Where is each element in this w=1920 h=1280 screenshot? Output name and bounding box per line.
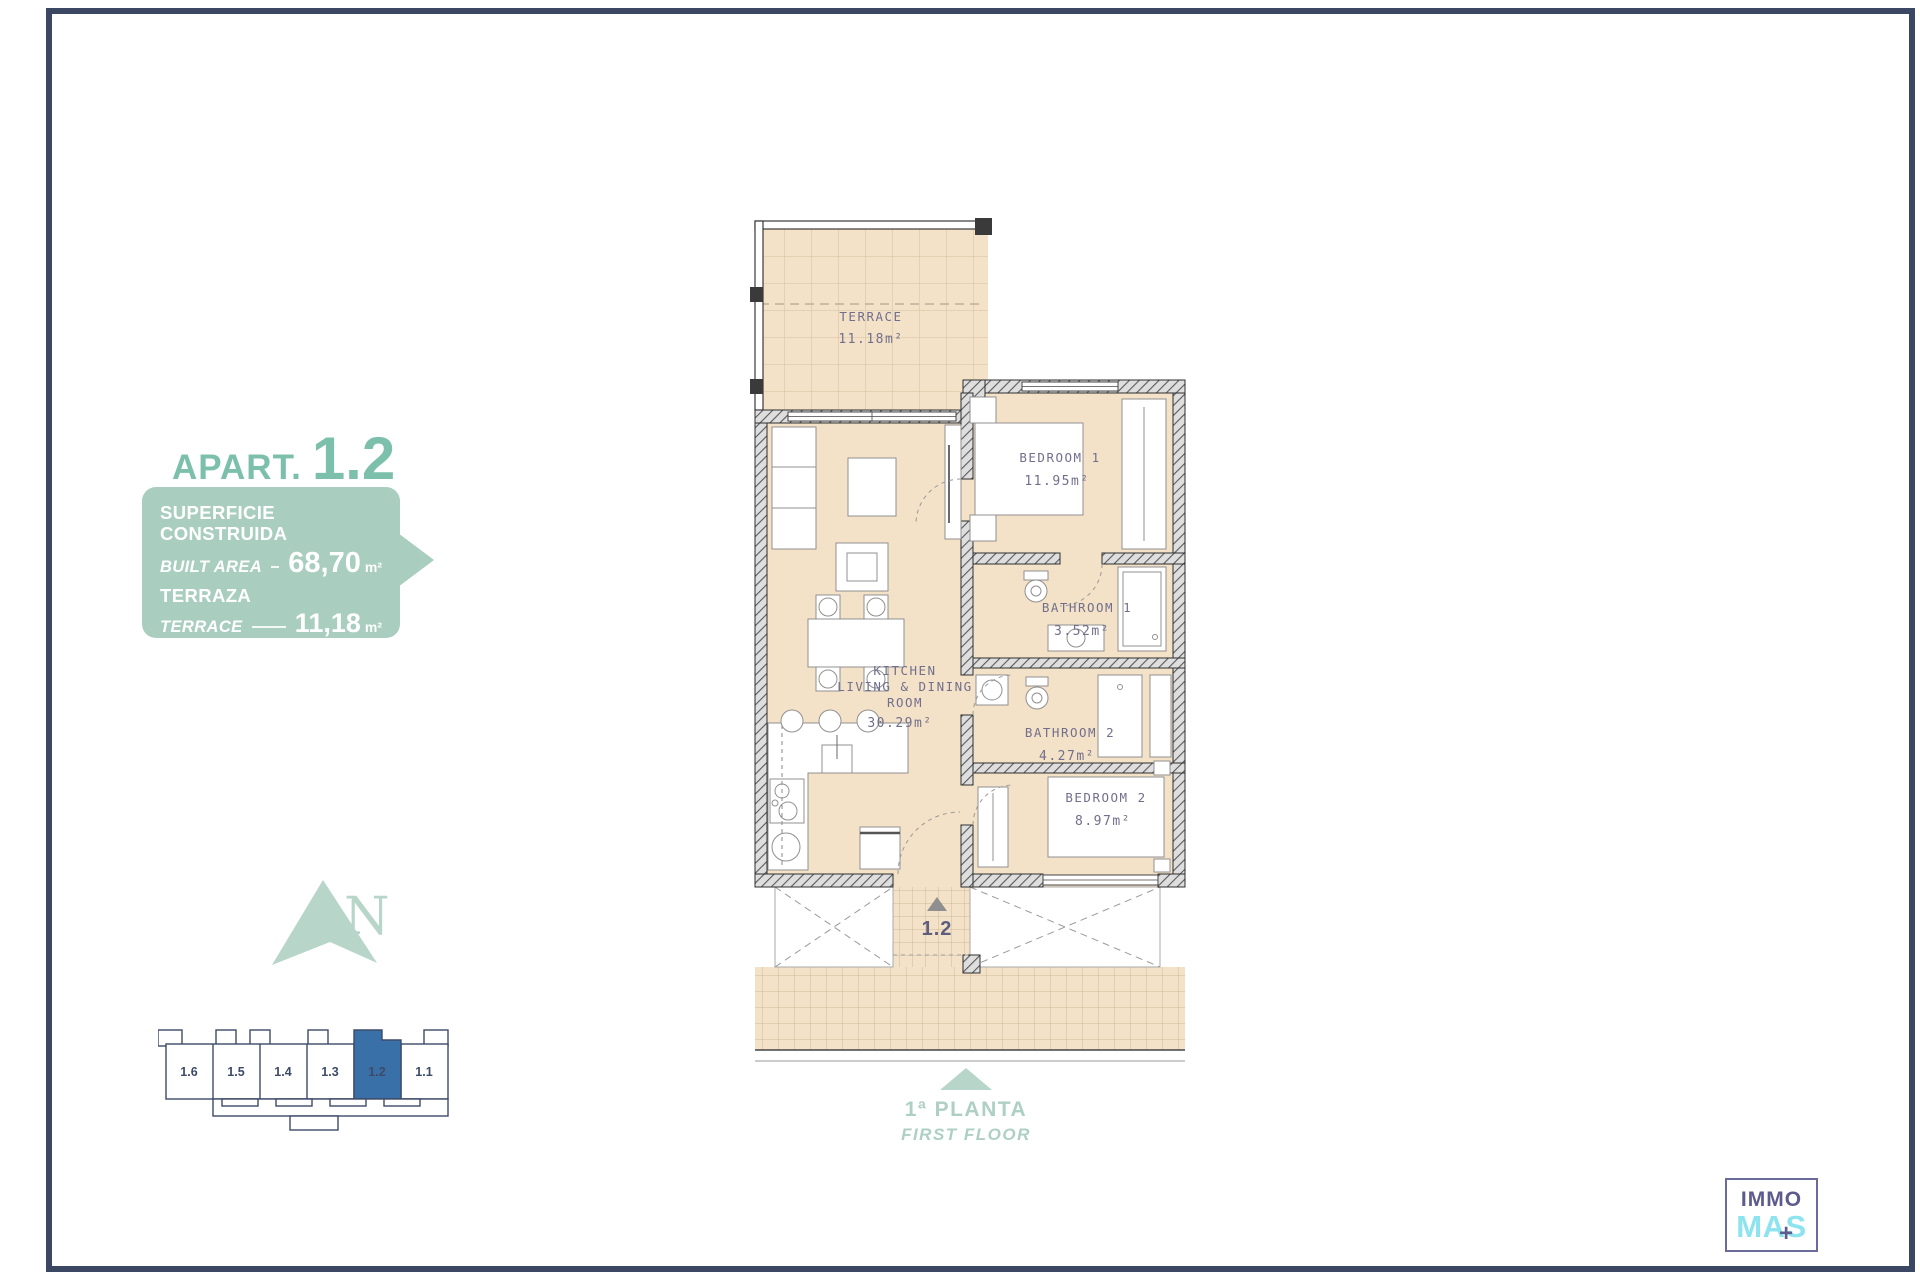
locator-door bbox=[384, 1099, 420, 1106]
tv-unit bbox=[945, 425, 961, 539]
wall bbox=[973, 553, 1060, 564]
floor-plan: TERRACE 11.18m² BEDROOM 1 11.95m² BATHRO… bbox=[730, 175, 1210, 1065]
total-value: 79,88 bbox=[278, 646, 361, 684]
hob-burner bbox=[779, 802, 797, 820]
terrace-parapet bbox=[755, 221, 988, 229]
nightstand bbox=[970, 397, 996, 423]
entry-post bbox=[963, 955, 980, 973]
terrace-value: 11,18 bbox=[295, 608, 361, 639]
bedroom1-label: BEDROOM 1 bbox=[1019, 450, 1100, 465]
nightstand bbox=[970, 515, 996, 541]
terrace-area: 11.18m² bbox=[838, 332, 903, 347]
bathroom2-label: BATHROOM 2 bbox=[1025, 725, 1115, 740]
nightstand bbox=[1154, 761, 1170, 775]
leader-line bbox=[233, 670, 269, 672]
locator-unit-label-highlighted: 1.2 bbox=[368, 1065, 385, 1079]
bedroom2-label: BEDROOM 2 bbox=[1065, 790, 1146, 805]
wall bbox=[1158, 874, 1185, 887]
leader-line bbox=[271, 566, 279, 568]
locator-unit-label: 1.5 bbox=[227, 1065, 244, 1079]
floor-name-en: FIRST FLOOR bbox=[810, 1125, 1122, 1145]
terrace-label: TERRACE bbox=[839, 309, 902, 324]
wall bbox=[755, 874, 893, 887]
wall bbox=[961, 825, 973, 887]
floor-caption: 1ª PLANTA FIRST FLOOR bbox=[810, 1068, 1122, 1145]
built-area-label-es: SUPERFICIE CONSTRUIDA bbox=[160, 502, 382, 545]
leader-line bbox=[252, 626, 286, 628]
locator-unit-label: 1.4 bbox=[274, 1065, 291, 1079]
area-info-box: SUPERFICIE CONSTRUIDA BUILT AREA 68,70 m… bbox=[142, 487, 400, 638]
locator-door bbox=[330, 1099, 366, 1106]
compass-north-letter: N bbox=[344, 887, 390, 947]
wall bbox=[970, 874, 1043, 887]
terrace-post bbox=[750, 287, 763, 302]
kitchen-label-line1: KITCHEN bbox=[873, 663, 936, 678]
terrace-label-es: TERRAZA bbox=[160, 585, 382, 606]
bedroom2-area: 8.97m² bbox=[1075, 814, 1131, 829]
terrace-post bbox=[750, 379, 763, 394]
apartment-title: APART. 1.2 bbox=[172, 424, 395, 493]
toilet-bowl bbox=[1032, 693, 1042, 703]
logo-plus-icon: + bbox=[1779, 1222, 1794, 1246]
dining-chair-seat bbox=[819, 670, 837, 688]
terrace-unit: m² bbox=[365, 619, 382, 635]
shower-drain bbox=[1118, 685, 1123, 690]
total-label: TOTAL bbox=[160, 660, 224, 682]
building-locator: 1.6 1.5 1.4 1.3 1.2 1.1 bbox=[158, 1016, 478, 1136]
total-row: TOTAL 79,88 m² bbox=[160, 646, 382, 684]
locator-unit-label: 1.3 bbox=[321, 1065, 338, 1079]
side-table-inner bbox=[847, 553, 877, 581]
dining-chair-seat bbox=[819, 598, 837, 616]
total-unit: m² bbox=[365, 663, 382, 679]
ground-path-floor bbox=[755, 967, 1185, 1050]
floor-arrow-icon bbox=[940, 1068, 992, 1090]
locator-stair-stub bbox=[290, 1116, 338, 1130]
built-area-label-en: BUILT AREA bbox=[160, 558, 262, 577]
wall bbox=[961, 715, 973, 785]
coffee-table bbox=[848, 458, 896, 516]
bathroom1-label: BATHROOM 1 bbox=[1042, 600, 1132, 615]
terrace-row: TERRACE 11,18 m² bbox=[160, 608, 382, 639]
nightstand bbox=[1154, 859, 1170, 872]
toilet-tank bbox=[1026, 677, 1048, 686]
sofa bbox=[772, 427, 816, 549]
terrace-post bbox=[975, 218, 992, 235]
wall bbox=[1102, 553, 1185, 564]
bed bbox=[975, 423, 1083, 515]
kitchen-stool bbox=[819, 710, 841, 732]
locator-unit-label: 1.6 bbox=[180, 1065, 197, 1079]
built-area-row: BUILT AREA 68,70 m² bbox=[160, 547, 382, 580]
terrace-label-en: TERRACE bbox=[160, 618, 243, 637]
wall bbox=[973, 763, 1185, 773]
logo-mas-text: MAS bbox=[1736, 1209, 1806, 1244]
north-compass: N bbox=[248, 872, 398, 977]
hob-knob bbox=[772, 800, 778, 806]
locator-door bbox=[222, 1099, 258, 1106]
locator-unit-label: 1.1 bbox=[415, 1065, 432, 1079]
dining-chair-seat bbox=[867, 598, 885, 616]
toilet-bowl bbox=[1031, 586, 1041, 596]
wall bbox=[973, 658, 1185, 668]
apartment-title-prefix: APART. bbox=[172, 448, 302, 488]
logo-word-immo: IMMO bbox=[1741, 1189, 1802, 1210]
entrance-unit-label: 1.2 bbox=[922, 918, 953, 940]
kitchen-area: 30.29m² bbox=[867, 716, 932, 731]
apartment-title-number: 1.2 bbox=[312, 424, 395, 493]
floor-name-es: 1ª PLANTA bbox=[810, 1098, 1122, 1122]
info-box-arrow bbox=[398, 533, 434, 587]
washing-machine bbox=[772, 833, 800, 861]
locator-door bbox=[276, 1099, 312, 1106]
bathroom-closet bbox=[1150, 675, 1171, 757]
logo-word-mas: MAS + bbox=[1736, 1211, 1806, 1242]
toilet-tank bbox=[1024, 571, 1048, 580]
kitchen-label-line2: LIVING & DINING bbox=[837, 679, 972, 694]
basin bbox=[982, 680, 1002, 700]
kitchen-stool bbox=[781, 710, 803, 732]
kitchen-label-line3: ROOM bbox=[887, 695, 923, 710]
bathroom2-area: 4.27m² bbox=[1039, 749, 1095, 764]
built-area-unit: m² bbox=[365, 559, 382, 575]
wall bbox=[755, 423, 767, 887]
brochure-page: APART. 1.2 SUPERFICIE CONSTRUIDA BUILT A… bbox=[0, 0, 1920, 1280]
wall bbox=[1173, 393, 1185, 887]
dining-table bbox=[808, 619, 904, 667]
shower-drain bbox=[1153, 635, 1158, 640]
built-area-value: 68,70 bbox=[288, 547, 361, 580]
bedroom1-area: 11.95m² bbox=[1024, 474, 1089, 489]
immomas-logo: IMMO MAS + bbox=[1725, 1178, 1818, 1252]
wall bbox=[961, 521, 973, 675]
bathroom1-area: 3.52m² bbox=[1054, 624, 1110, 639]
